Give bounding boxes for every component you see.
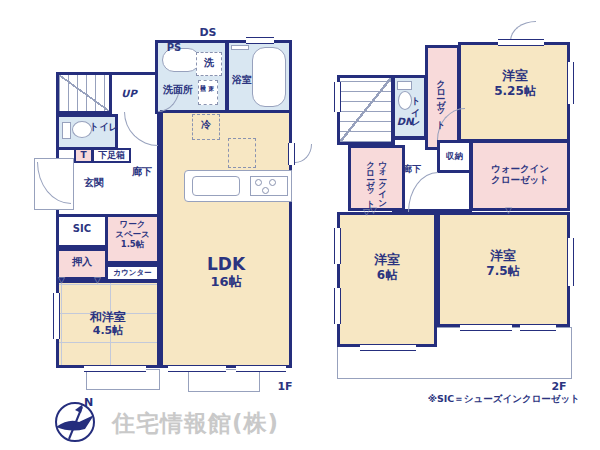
label-ds: DS <box>196 26 220 39</box>
label-hallway-2f: 廊下 <box>396 164 428 175</box>
sliding-door-marker: ▽ <box>370 206 377 215</box>
label-floor-1f: 1F <box>272 380 298 393</box>
staircase-2f <box>337 75 394 145</box>
floor-hatch-label: 点検口 <box>201 81 208 104</box>
floor-hatch-label: 床下 <box>209 81 216 104</box>
label-floor-2f: 2F <box>546 380 572 393</box>
floor-hatch-icon: 床下 点検口 <box>198 80 218 105</box>
label-up: UP <box>116 88 142 100</box>
terrace-step <box>188 369 260 392</box>
bathtub-icon <box>252 47 286 107</box>
sliding-door-marker: ▽ <box>58 276 65 285</box>
label-shoebox: 下足箱 <box>92 150 131 161</box>
label-toilet-1f: トイレ <box>88 121 120 132</box>
terrace-step <box>86 369 160 390</box>
label-bathroom: 浴室 <box>228 74 256 86</box>
bath-shelf-icon <box>231 45 249 50</box>
label-workspace: ワーク スペース 1.5帖 <box>106 219 159 250</box>
window <box>168 365 226 372</box>
window <box>567 62 574 104</box>
sliding-door-marker: ▽ <box>94 276 101 285</box>
toilet-tank-icon <box>62 122 71 139</box>
label-closet-2f: クローゼット <box>435 56 446 141</box>
label-entrance: 玄関 <box>72 177 116 189</box>
window <box>236 365 286 372</box>
door-arc <box>510 21 536 41</box>
window <box>567 238 574 286</box>
window <box>334 288 341 324</box>
label-oshiire: 押入 <box>58 256 106 268</box>
label-washroom: 洗面所 <box>158 84 198 96</box>
furniture-space-icon <box>228 138 256 168</box>
label-ps: PS <box>162 42 186 54</box>
window <box>84 365 146 372</box>
window <box>53 293 60 339</box>
label-hallway-1f: 廊下 <box>124 166 160 178</box>
floorplan-canvas: 床下 点検口 ▽ ▽ DS PS 洗 洗面所 浴室 UP トイレ T 下足箱 玄… <box>0 0 600 450</box>
ldk-name: LDK <box>186 254 266 274</box>
label-tatami-room: 和洋室 4.5帖 <box>66 310 150 338</box>
label-wic-right: ウォークイン クローゼット <box>480 163 560 186</box>
kitchen-sink-icon <box>192 176 240 196</box>
label-wic-left: ウォークイン クローゼット <box>356 151 398 207</box>
window <box>334 82 341 112</box>
burner-icon <box>269 179 276 186</box>
window <box>246 37 274 44</box>
staircase-1f <box>56 72 112 114</box>
label-tag-t: T <box>74 150 93 161</box>
room-ldk <box>160 110 292 368</box>
label-fridge: 冷 <box>192 119 220 131</box>
label-sic: SIC <box>58 223 106 235</box>
ldk-size: 16帖 <box>186 274 266 290</box>
window <box>360 344 416 351</box>
label-yoshitsu-75: 洋室 7.5帖 <box>472 248 534 278</box>
sliding-door-marker: ▽ <box>505 206 512 215</box>
label-counter: カウンター <box>106 268 159 277</box>
label-yoshitsu-6: 洋室 6帖 <box>356 252 418 282</box>
label-dn: DN <box>392 116 418 128</box>
burner-icon <box>262 187 269 194</box>
window <box>460 324 512 331</box>
burner-icon <box>255 179 262 186</box>
label-storage: 収納 <box>438 151 471 161</box>
label-ldk: LDK 16帖 <box>186 254 266 290</box>
label-yoshitsu-525: 洋室 5.25帖 <box>484 68 546 98</box>
compass-north-label: N <box>84 396 93 409</box>
window <box>498 39 544 46</box>
back-door-opening <box>288 143 295 165</box>
compass-icon: N <box>50 394 102 446</box>
window <box>520 324 556 331</box>
label-laundry: 洗 <box>196 57 222 69</box>
window <box>334 228 341 264</box>
sliding-door-marker: ▽ <box>363 208 370 217</box>
company-name: 住宅情報館(株) <box>112 410 322 438</box>
label-sic-note: ※SIC＝シューズインクローゼット <box>360 393 580 404</box>
back-door-arc <box>295 144 312 163</box>
